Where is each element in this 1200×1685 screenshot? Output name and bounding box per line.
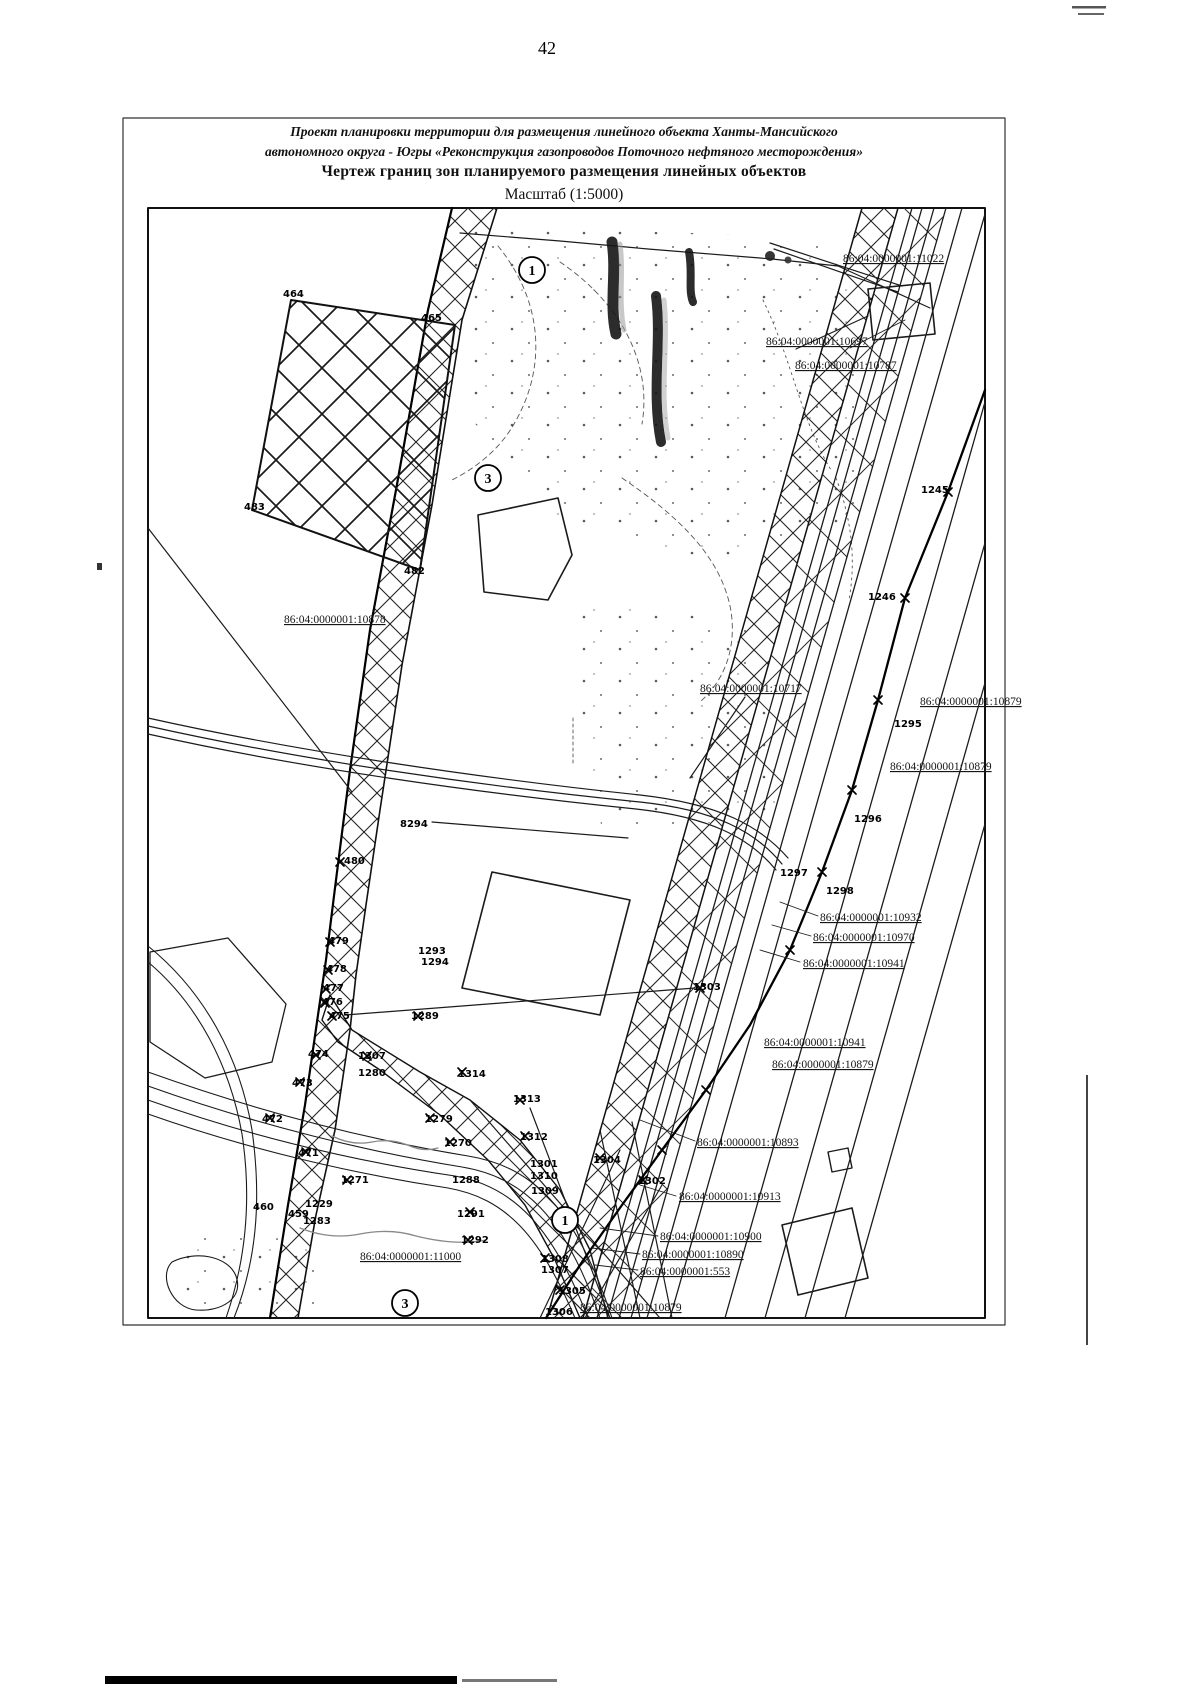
cadastral-label: 86:04:0000001:10941: [764, 1037, 866, 1049]
map-drawing: 86:04:0000001:11022 86:04:0000001:10697 …: [0, 0, 1200, 1685]
point-label: 1308: [541, 1254, 569, 1265]
point-label: 1313: [513, 1094, 541, 1105]
cadastral-label: 86:04:0000001:10900: [660, 1231, 762, 1243]
point-label: 479: [328, 936, 349, 947]
point-label: 1303: [693, 982, 721, 993]
point-label: 1301: [530, 1159, 558, 1170]
point-label: 1298: [826, 886, 854, 897]
point-label: 8294: [400, 819, 428, 830]
hatched-parcel: [252, 300, 455, 570]
cadastral-label: 86:04:0000001:10787: [795, 360, 897, 372]
point-label: 473: [292, 1078, 313, 1089]
point-label: 1312: [520, 1132, 548, 1143]
point-label: 1229: [305, 1199, 333, 1210]
point-label: 1280: [358, 1068, 386, 1079]
point-label: 474: [308, 1049, 329, 1060]
map-marker: 1: [562, 1214, 569, 1229]
point-label: 476: [322, 997, 343, 1008]
point-label: 1297: [780, 868, 808, 879]
cadastral-label: 86:04:0000001:10879: [772, 1059, 874, 1071]
point-label: 483: [244, 502, 265, 513]
cadastral-label: 86:04:0000001:10913: [679, 1191, 781, 1203]
point-label: 1309: [531, 1186, 559, 1197]
point-label: 1306: [545, 1307, 573, 1318]
point-label: 1245: [921, 485, 949, 496]
point-label: 1295: [894, 719, 922, 730]
point-label: 477: [323, 983, 344, 994]
point-label: 482: [404, 566, 425, 577]
point-label: 472: [262, 1114, 283, 1125]
point-label: 1305: [558, 1286, 586, 1297]
cadastral-label: 86:04:0000001:10878: [284, 614, 386, 626]
map-marker: 3: [402, 1297, 409, 1312]
point-label: 1304: [593, 1155, 621, 1166]
point-label: 1294: [421, 957, 449, 968]
map-marker: 1: [529, 264, 536, 279]
cadastral-label: 86:04:0000001:11022: [843, 253, 944, 265]
cadastral-label: 86:04:0000001:10893: [697, 1137, 799, 1149]
building-footprint: [828, 1148, 852, 1172]
map-marker: 3: [485, 472, 492, 487]
cadastral-label: 86:04:0000001:11000: [360, 1251, 461, 1263]
cadastral-label: 86:04:0000001:10879: [920, 696, 1022, 708]
point-label: 1292: [461, 1235, 489, 1246]
point-label: 1271: [341, 1175, 369, 1186]
point-label: 1270: [444, 1138, 472, 1149]
cadastral-label: 86:04:0000001:10879: [580, 1302, 682, 1314]
cadastral-label: 86:04:0000001:10941: [803, 958, 905, 970]
point-label: 1296: [854, 814, 882, 825]
cadastral-label: 86:04:0000001:10717: [700, 683, 802, 695]
point-label: 1283: [303, 1216, 331, 1227]
point-label: 1307: [541, 1265, 569, 1276]
point-label: 1289: [411, 1011, 439, 1022]
point-label: 1302: [638, 1176, 666, 1187]
point-label: 1246: [868, 592, 896, 603]
cadastral-label: 86:04:0000001:10879: [890, 761, 992, 773]
point-label: 460: [253, 1202, 274, 1213]
point-label: 1310: [530, 1171, 558, 1182]
cadastral-label: 86:04:0000001:10697: [766, 336, 868, 348]
cadastral-label: 86:04:0000001:10932: [820, 912, 922, 924]
point-label: 1314: [458, 1069, 486, 1080]
point-label: 471: [298, 1148, 319, 1159]
point-label: 464: [283, 289, 304, 300]
point-label: 475: [329, 1011, 350, 1022]
cadastral-label: 86:04:0000001:10890: [642, 1249, 744, 1261]
building-footprint: [462, 872, 630, 1015]
point-label: 465: [421, 313, 442, 324]
point-label: 1291: [457, 1209, 485, 1220]
point-label: 478: [326, 964, 347, 975]
point-label: 1288: [452, 1175, 480, 1186]
point-label: 480: [344, 856, 365, 867]
point-label: 1279: [425, 1114, 453, 1125]
cadastral-label: 86:04:0000001:553: [640, 1266, 730, 1278]
point-label: 1293: [418, 946, 446, 957]
point-label: 1307: [358, 1051, 386, 1062]
cadastral-label: 86:04:0000001:10970: [813, 932, 915, 944]
